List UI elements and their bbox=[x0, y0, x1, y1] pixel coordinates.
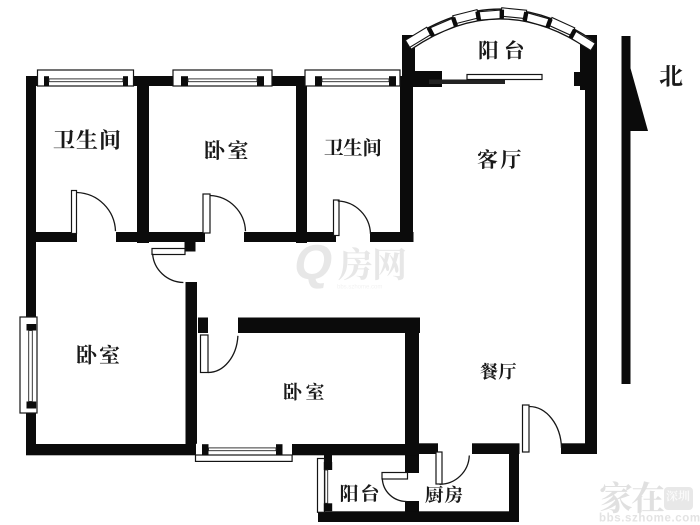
svg-text:bbs.szhome.com: bbs.szhome.com bbox=[337, 285, 382, 291]
svg-text:bbs.szhome.com: bbs.szhome.com bbox=[599, 513, 700, 525]
